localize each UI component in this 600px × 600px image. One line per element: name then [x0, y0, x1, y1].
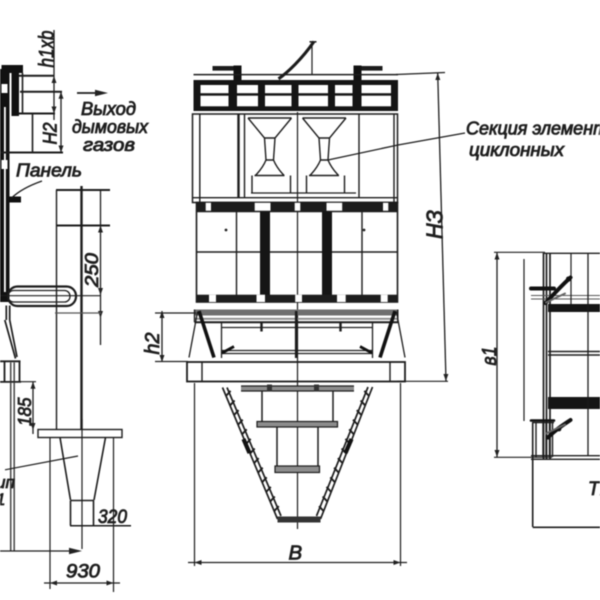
svg-text:Панель: Панель [16, 160, 82, 181]
svg-text:930: 930 [66, 562, 100, 583]
svg-text:1: 1 [0, 490, 5, 509]
svg-text:h2: h2 [142, 333, 164, 355]
svg-text:Секция элементов: Секция элементов [466, 119, 600, 139]
svg-text:Т1: Т1 [588, 479, 600, 500]
svg-text:Выход: Выход [81, 99, 136, 119]
svg-text:в1: в1 [479, 347, 501, 366]
svg-text:320: 320 [98, 507, 127, 528]
svg-text:H2: H2 [41, 122, 62, 144]
svg-text:НЗ: НЗ [422, 210, 448, 239]
svg-text:газов: газов [83, 135, 135, 155]
svg-text:h1xb: h1xb [36, 30, 59, 67]
svg-text:В: В [289, 542, 303, 565]
svg-text:циклонных: циклонных [469, 140, 565, 160]
svg-text:185: 185 [15, 397, 35, 426]
svg-text:250: 250 [82, 253, 102, 288]
svg-text:дымовых: дымовых [72, 117, 149, 137]
